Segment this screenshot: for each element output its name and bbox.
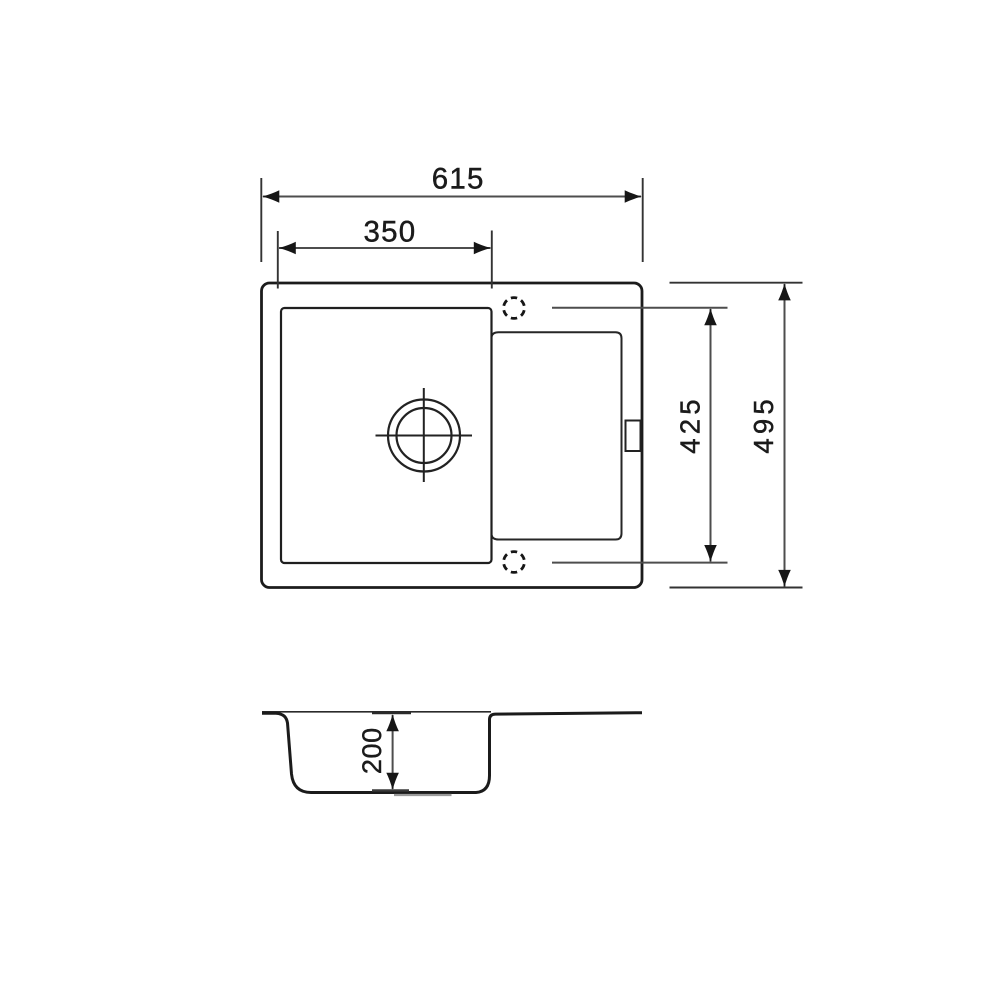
svg-text:615: 615: [432, 163, 485, 196]
svg-text:495: 495: [748, 395, 779, 453]
svg-text:200: 200: [357, 727, 387, 774]
svg-text:350: 350: [363, 215, 416, 248]
svg-text:425: 425: [675, 395, 706, 453]
